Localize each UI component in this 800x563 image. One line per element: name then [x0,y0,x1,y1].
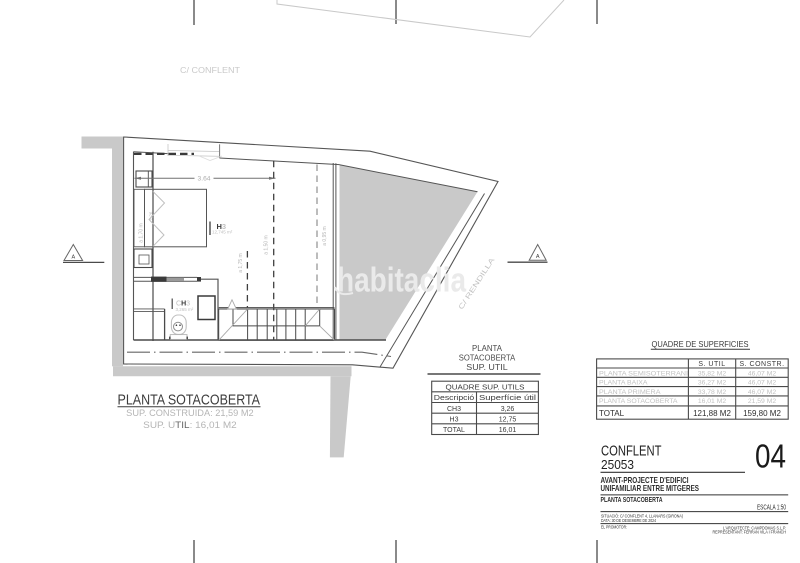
svg-text:PLANTA PRIMERA: PLANTA PRIMERA [599,389,661,396]
svg-text:46,07 M2: 46,07 M2 [748,370,777,377]
svg-text:DATA: 30 DE DESEMBRE DE 2024: DATA: 30 DE DESEMBRE DE 2024 [601,518,656,523]
svg-text:SOTACOBERTA: SOTACOBERTA [459,354,516,363]
svg-text:12,745 m²: 12,745 m² [212,230,233,235]
svg-text:habitaclia: habitaclia [337,262,467,300]
svg-text:Superfície útil: Superfície útil [479,395,537,402]
svg-text:PLANTA SEMISOTERRANI: PLANTA SEMISOTERRANI [599,370,688,377]
svg-text:a 1,75 m: a 1,75 m [238,253,244,272]
svg-text:ESCALA 1:50: ESCALA 1:50 [757,502,786,511]
svg-text:33,78 M2: 33,78 M2 [698,389,727,396]
svg-text:SUP. CONSTRUIDA: 21,59 M2: SUP. CONSTRUIDA: 21,59 M2 [126,408,254,418]
svg-text:S. UTIL: S. UTIL [698,361,725,368]
svg-text:PLANTA SOTACOBERTA: PLANTA SOTACOBERTA [601,495,663,504]
svg-text:Descripció: Descripció [434,395,475,402]
svg-text:C/ CONFLENT: C/ CONFLENT [180,66,240,75]
svg-text:PLANTA: PLANTA [472,344,503,353]
svg-text:36,27 M2: 36,27 M2 [698,380,727,387]
svg-text:SUP. UTIL: SUP. UTIL [466,363,508,372]
svg-text:04: 04 [755,438,786,475]
svg-text:EL PROMOTOR:: EL PROMOTOR: [601,525,627,530]
svg-text:16,01 M2: 16,01 M2 [698,398,727,405]
svg-text:a 1,50 m: a 1,50 m [264,235,270,254]
svg-text:25053: 25053 [601,457,634,472]
svg-text:21,59 M2: 21,59 M2 [748,398,777,405]
svg-text:1,26: 1,26 [149,211,154,220]
svg-text:16,01: 16,01 [499,427,517,434]
svg-text:3,26: 3,26 [501,406,515,413]
svg-text:46,07 M2: 46,07 M2 [748,389,777,396]
svg-text:REPRESENTANT: FERRAN VILA I FR: REPRESENTANT: FERRAN VILA I FRANCH [713,530,787,535]
svg-text:CH3: CH3 [447,406,461,413]
svg-text:121,88 M2: 121,88 M2 [693,409,731,418]
svg-text:QUADRE DE SUPERFICIES: QUADRE DE SUPERFICIES [652,339,749,349]
svg-text:PLANTA SOTACOBERTA: PLANTA SOTACOBERTA [599,398,678,405]
svg-text:a 1,70 m: a 1,70 m [139,223,145,242]
svg-text:QUADRE SUP. UTILS: QUADRE SUP. UTILS [446,385,525,392]
svg-text:A: A [536,254,540,260]
svg-text:a 0,95 m: a 0,95 m [322,226,328,245]
svg-text:12,75: 12,75 [499,417,517,424]
svg-text:3,265 m²: 3,265 m² [176,307,194,312]
svg-text:46,07 M2: 46,07 M2 [748,380,777,387]
svg-text:3.64: 3.64 [198,176,212,182]
svg-text:S. CONSTR.: S. CONSTR. [739,361,784,368]
svg-text:PLANTA SOTACOBERTA: PLANTA SOTACOBERTA [118,392,261,408]
svg-text:159,80 M2: 159,80 M2 [743,409,781,418]
svg-text:H3: H3 [450,417,459,424]
svg-text:PLANTA BAIXA: PLANTA BAIXA [599,380,648,387]
svg-text:35,82 M2: 35,82 M2 [698,370,727,377]
svg-text:TOTAL: TOTAL [599,409,625,418]
svg-text:SUP. UTIL: 16,01 M2: SUP. UTIL: 16,01 M2 [143,420,237,430]
svg-text:UNIFAMILIAR ENTRE MITGERES: UNIFAMILIAR ENTRE MITGERES [601,484,700,493]
svg-text:TOTAL: TOTAL [443,427,465,434]
svg-text:A: A [71,255,75,261]
